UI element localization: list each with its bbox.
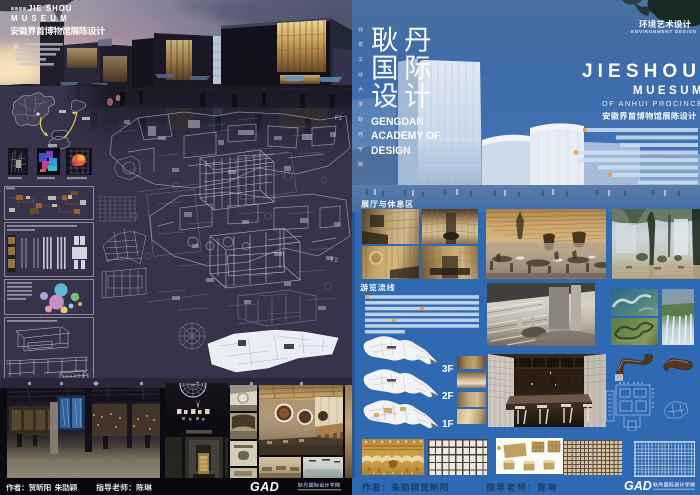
svg-text:F1: F1	[335, 116, 343, 122]
